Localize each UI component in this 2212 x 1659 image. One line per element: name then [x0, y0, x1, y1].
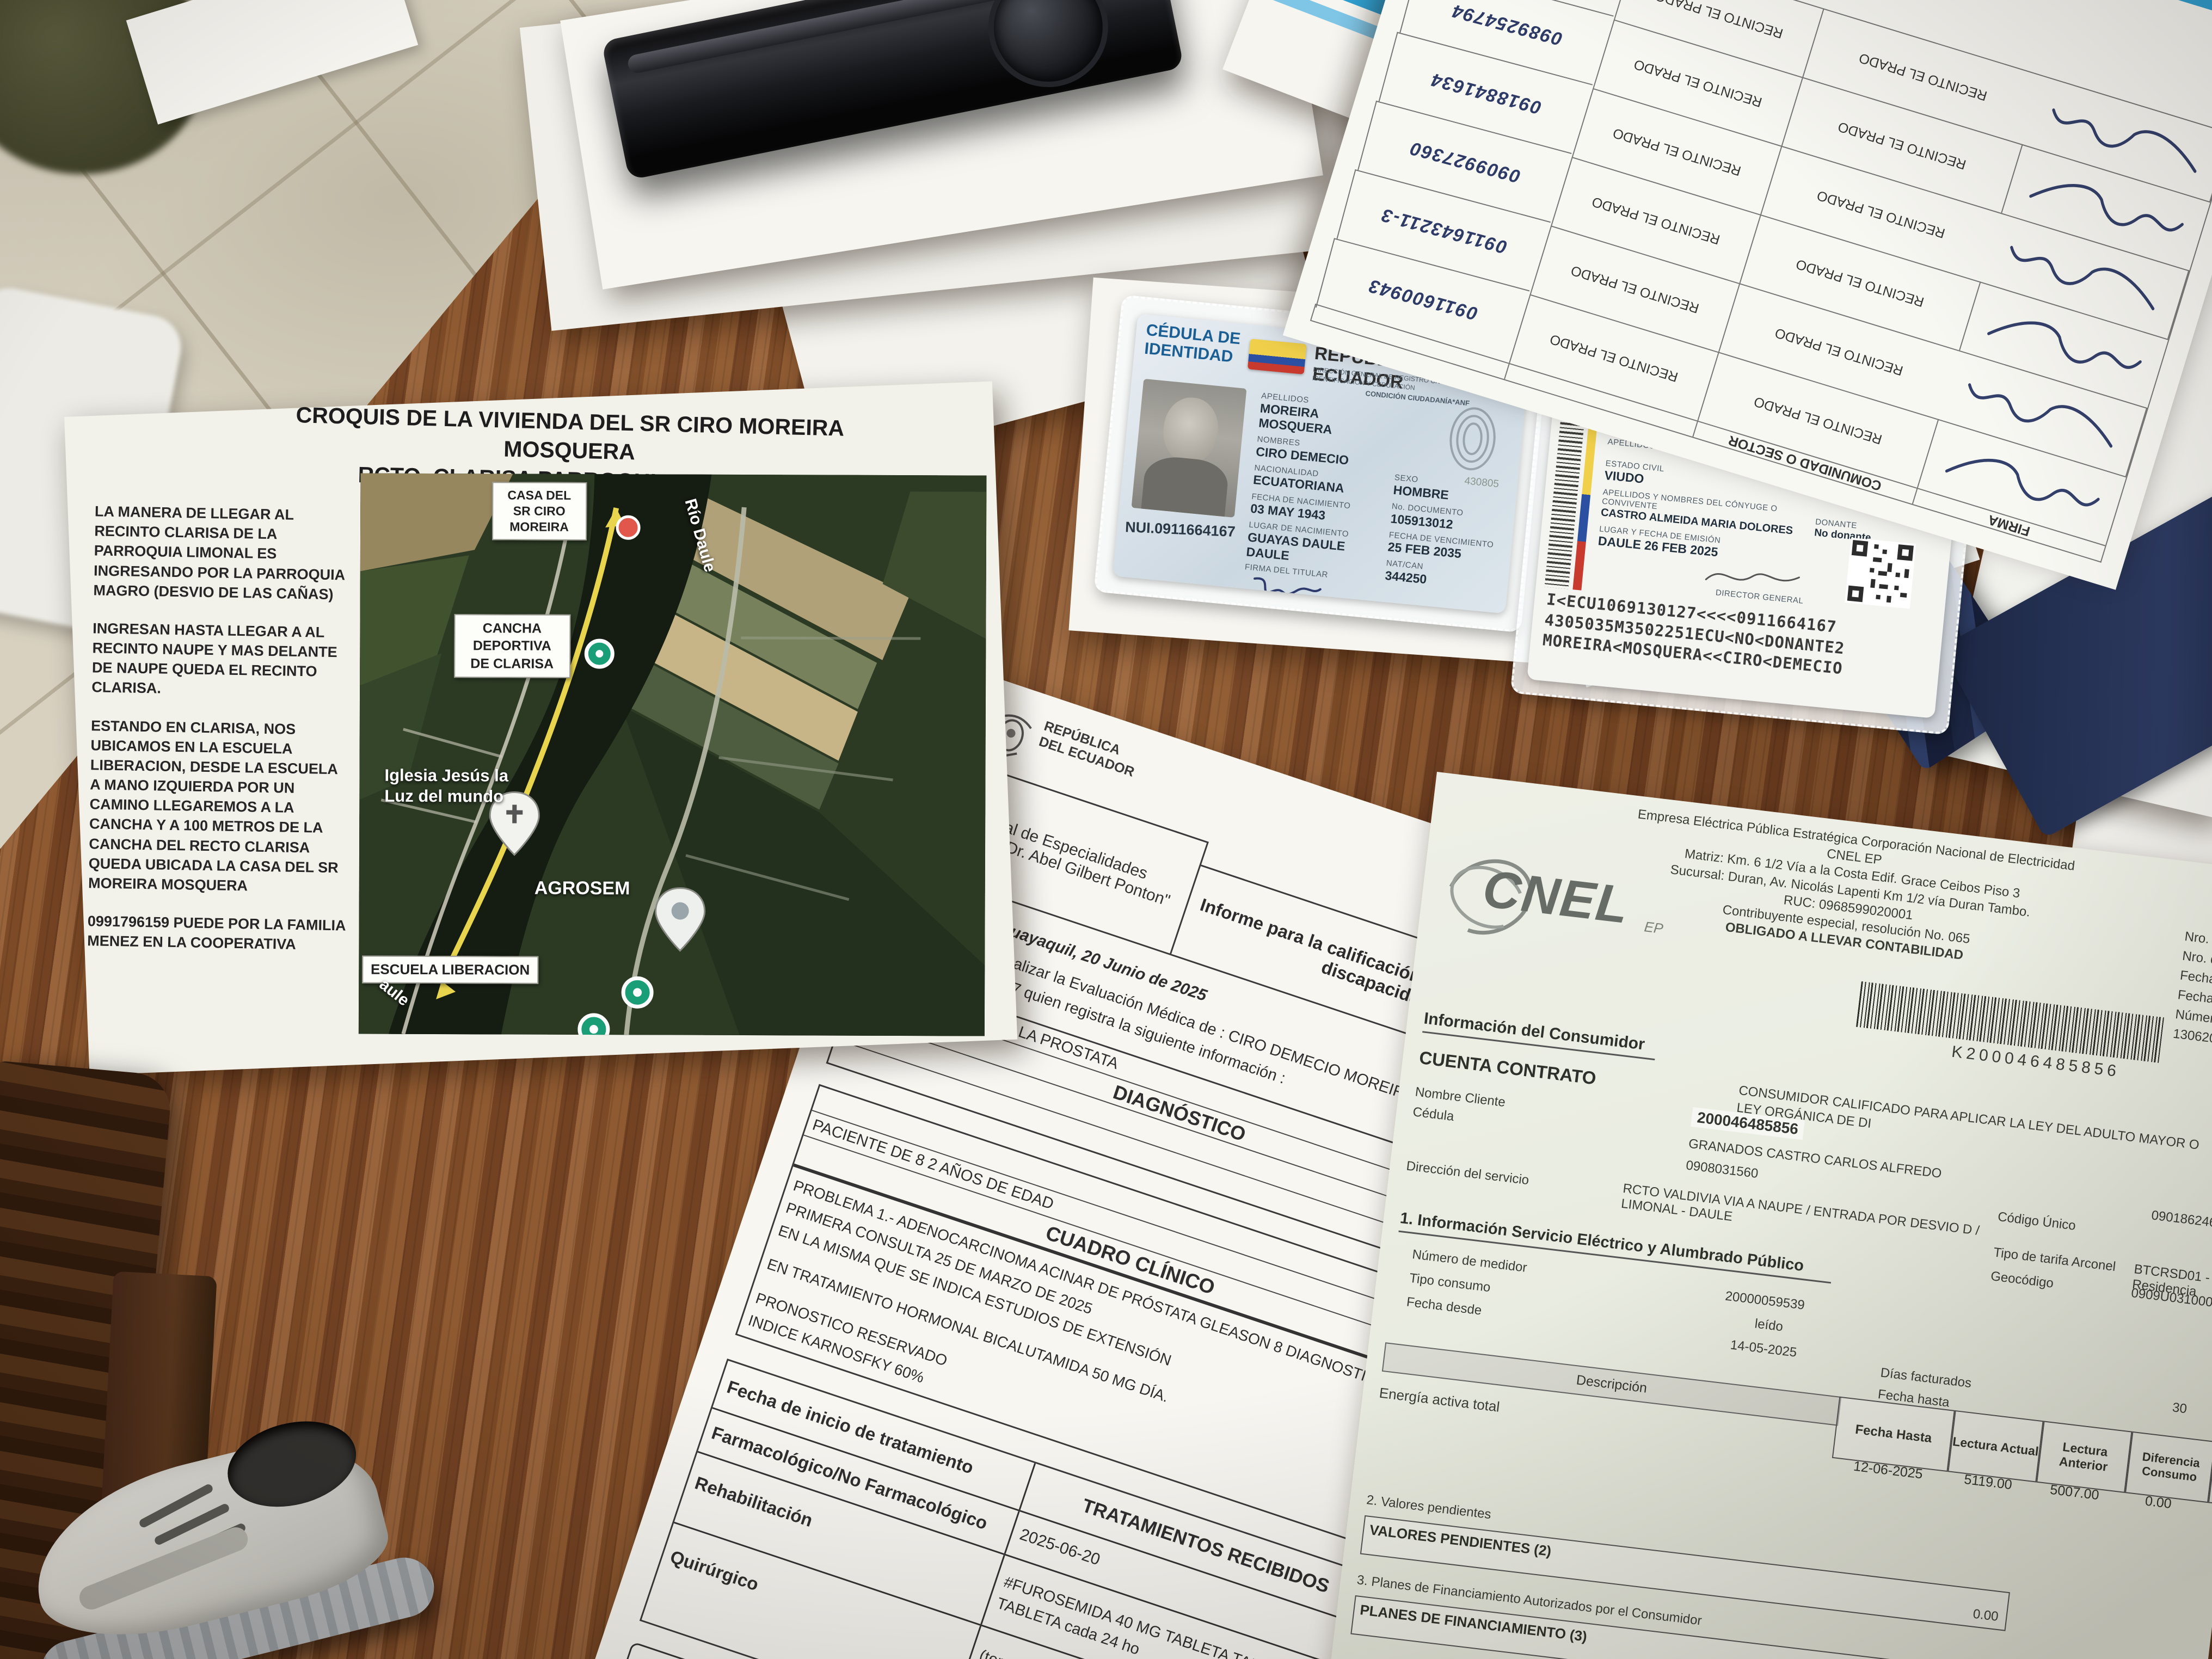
- tipo-consumo-label: Tipo consumo: [1409, 1271, 1491, 1296]
- satellite-map: CASA DEL SR CIRO MOREIRA CANCHA DEPORTIV…: [359, 474, 987, 1036]
- tipo-consumo-value: leído: [1754, 1316, 1784, 1335]
- cedula-nui: NUI.0911664167: [1125, 519, 1236, 540]
- medidor-label: Número de medidor: [1411, 1247, 1528, 1276]
- croquis-para3: ESTANDO EN CLARISA, NOS UBICAMOS EN LA E…: [88, 716, 350, 898]
- fecha-desde-value: 14-05-2025: [1729, 1337, 1797, 1360]
- fecha-desde-label: Fecha desde: [1406, 1294, 1483, 1318]
- map-label-agrosem: AGROSEM: [534, 877, 630, 899]
- portrait-photo: [1132, 379, 1247, 518]
- map-pin-red: [617, 517, 639, 538]
- fingerprint-icon: [1442, 404, 1503, 474]
- portrait-shoulders: [1141, 454, 1230, 518]
- croquis-para2: INGRESAN HASTA LLEGAR A AL RECINTO NAUPE…: [91, 618, 351, 702]
- map-label-iglesia: Iglesia Jesús la Luz del mundo: [384, 765, 508, 807]
- floor-paper: [126, 0, 419, 125]
- map-label-casa: CASA DEL SR CIRO MOREIRA: [492, 482, 587, 540]
- desk-photo-scene: REPÚBLICA DEL ECUADOR Hospital de Especi…: [0, 0, 2212, 1659]
- bill-right-labels: Nro. Factura Nro. doc. interno Fecha de …: [2172, 927, 2212, 1056]
- croquis-paper: CROQUIS DE LA VIVIENDA DEL SR CIRO MOREI…: [64, 382, 1017, 1076]
- cedula-value: 0908031560: [1685, 1158, 1759, 1182]
- electricity-bill-paper: CNEL EP Empresa Eléctrica Pública Estrat…: [1305, 772, 2212, 1659]
- row-energia-label: Energía activa total: [1378, 1385, 1501, 1416]
- croquis-directions: LA MANERA DE LLEGAR AL RECINTO CLARISA D…: [87, 501, 353, 974]
- ecuador-flag-icon: [1248, 339, 1307, 374]
- map-marker-green-3: [580, 1015, 608, 1036]
- cedula-doc-type: CÉDULA DE IDENTIDAD: [1144, 321, 1242, 367]
- dias-facturados-value: 30: [2172, 1400, 2188, 1417]
- medidor-value: 20000059539: [1724, 1289, 1805, 1313]
- valores-pendientes-label: VALORES PENDIENTES (2): [1368, 1521, 1552, 1560]
- satellite-map-art: [359, 474, 987, 1036]
- map-marker-green-2: [623, 978, 652, 1006]
- cuenta-contrato-label: CUENTA CONTRATO: [1418, 1047, 1597, 1089]
- geocodigo-label: Geocódigo: [1990, 1269, 2055, 1292]
- numero-aut-value: 13062025: [2172, 1024, 2212, 1056]
- direccion-servicio-label: Dirección del servicio: [1405, 1159, 1529, 1189]
- map-label-cancha: CANCHA DEPORTIVA DE CLARISA: [454, 614, 570, 678]
- portrait-face: [1160, 395, 1221, 465]
- map-marker-green-1: [586, 641, 612, 667]
- croquis-para4: 0991796159 PUEDE POR LA FAMILIA MENEZ EN…: [87, 911, 346, 955]
- row-consumo: 112.0: [2198, 1500, 2212, 1524]
- codigo-unico-value: 0901862463: [2150, 1208, 2212, 1232]
- cedula-label: Cédula: [1412, 1104, 1455, 1125]
- croquis-para1: LA MANERA DE LLEGAR AL RECINTO CLARISA D…: [93, 501, 353, 604]
- dias-facturados-label: Días facturados: [1879, 1365, 1972, 1391]
- valores-pendientes-value: 0.00: [1972, 1607, 1999, 1625]
- qr-code: [1845, 538, 1916, 609]
- tarifa-label: Tipo de tarifa Arconel: [1993, 1245, 2117, 1275]
